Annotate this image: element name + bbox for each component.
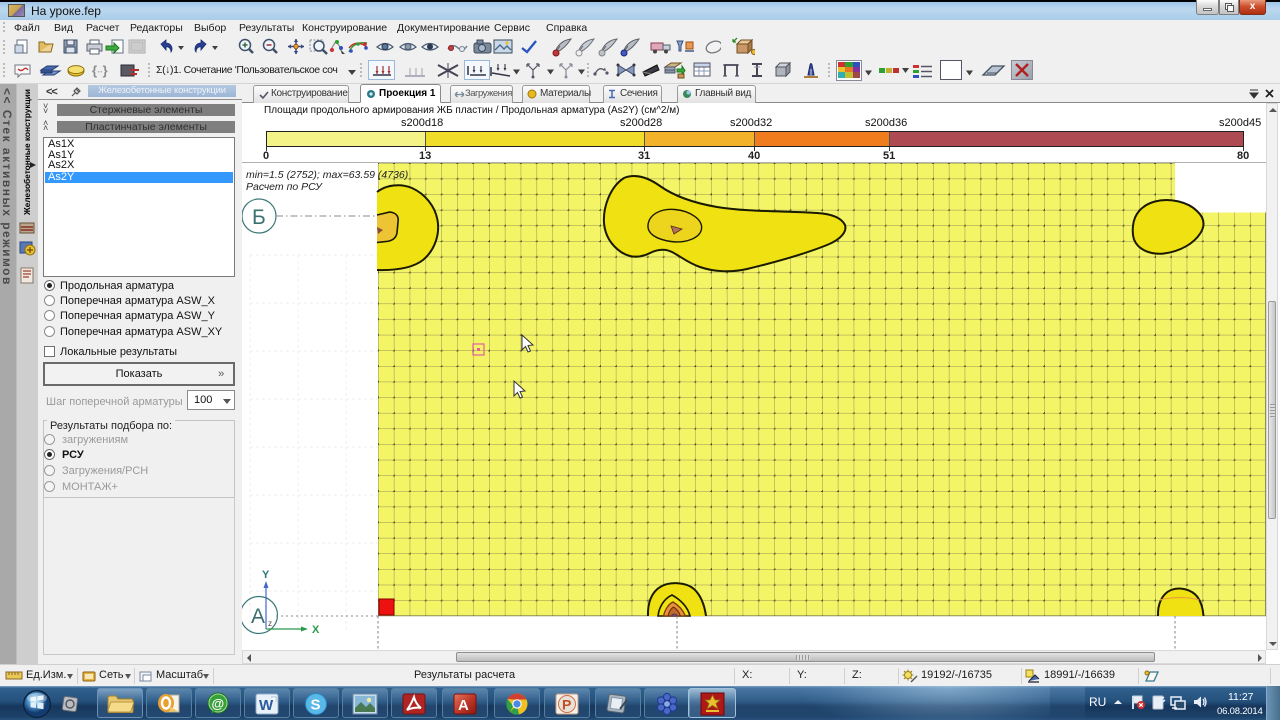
svg-text:X: X — [312, 624, 320, 636]
svg-text:Расчет по РСУ: Расчет по РСУ — [246, 181, 323, 193]
svg-text:А: А — [251, 605, 265, 628]
svg-text:P: P — [562, 697, 571, 713]
svg-text:Y: Y — [262, 569, 270, 581]
svg-text:A: A — [458, 697, 469, 714]
svg-text:min=1.5 (2752); max=63.59 (473: min=1.5 (2752); max=63.59 (4736) — [246, 169, 408, 181]
svg-text:@: @ — [212, 696, 225, 711]
svg-text:z: z — [268, 619, 272, 628]
svg-text:W: W — [259, 697, 274, 714]
svg-text:Б: Б — [252, 206, 266, 229]
svg-text:S: S — [311, 697, 321, 714]
